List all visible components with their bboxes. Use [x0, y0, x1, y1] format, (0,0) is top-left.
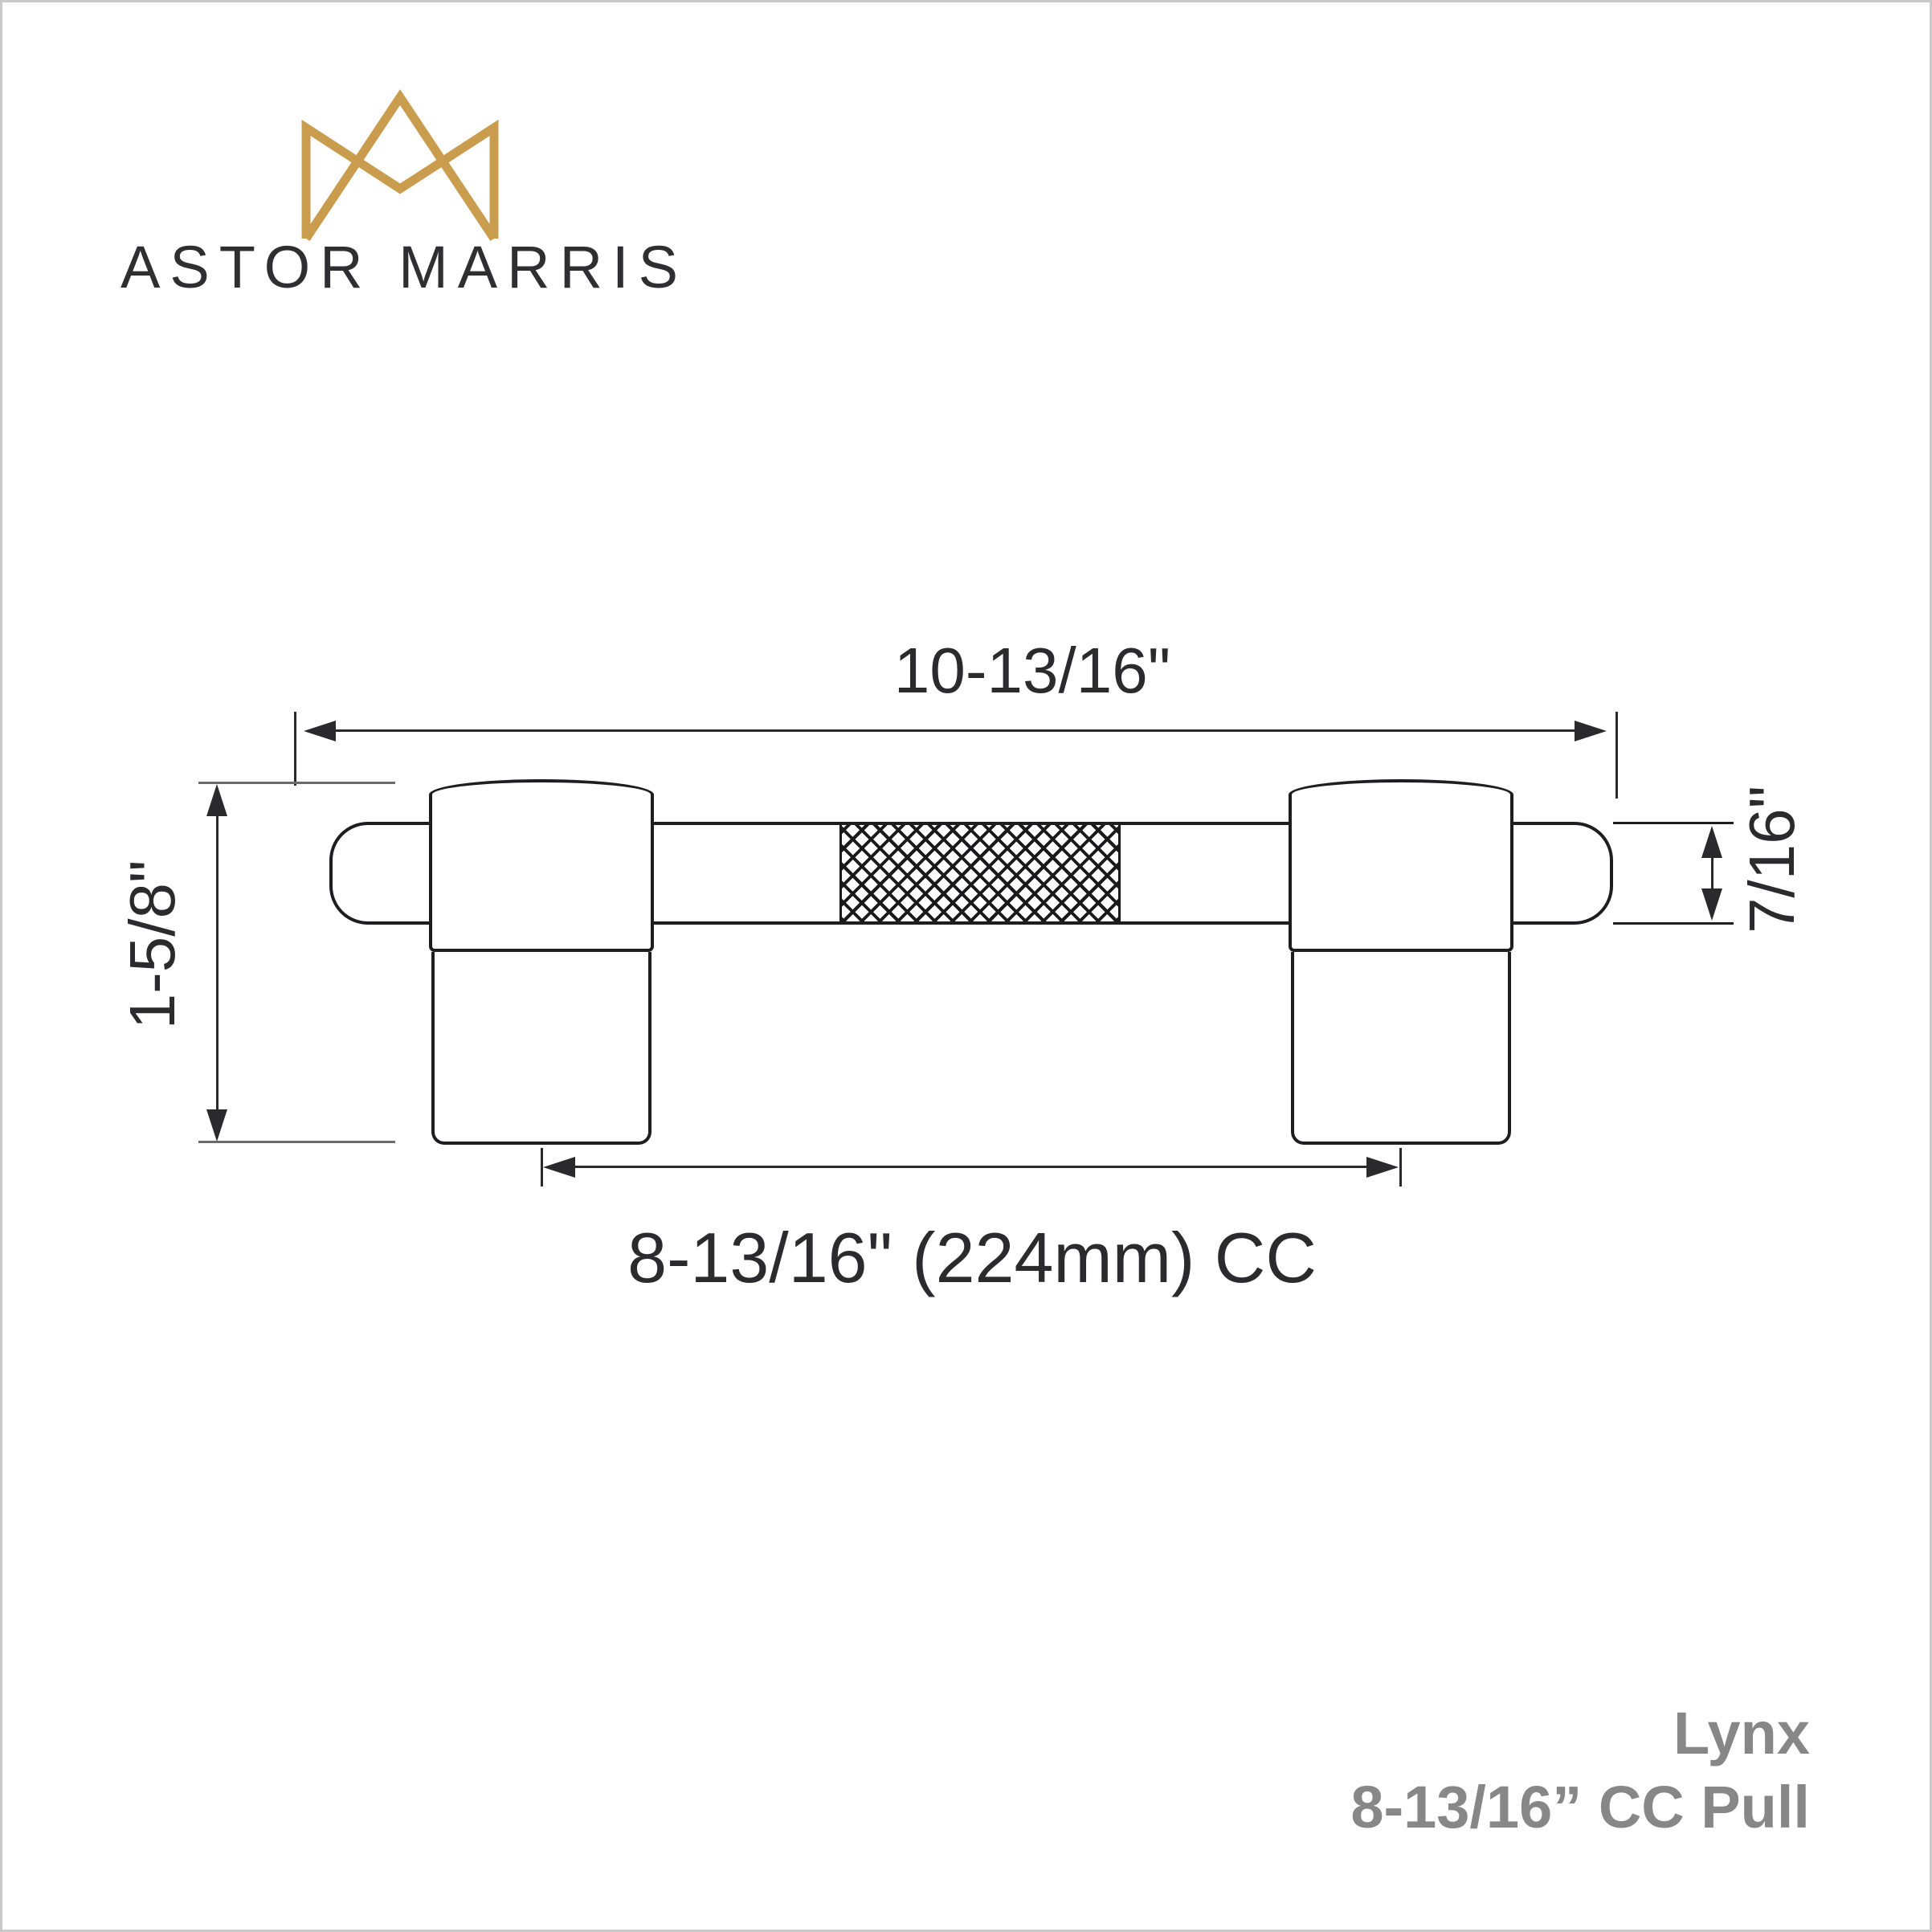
overall-length-label: 10-13/16" [894, 639, 1170, 703]
witness-line-right [1615, 712, 1618, 799]
witness-line-bottom [1613, 922, 1734, 925]
bar-diameter-label: 7/16" [1740, 786, 1804, 933]
left-post-cap [429, 779, 654, 952]
arrowhead-down-icon [1701, 888, 1722, 921]
right-post-base [1291, 952, 1511, 1145]
arrowhead-left-icon [543, 1157, 575, 1178]
witness-line-top [198, 782, 395, 784]
dimension-line [216, 791, 219, 1135]
arrowhead-up-icon [1701, 826, 1722, 858]
center-to-center-label: 8-13/16" (224mm) CC [627, 1223, 1317, 1293]
product-label: Lynx 8-13/16” CC Pull [1350, 1697, 1810, 1844]
arrowhead-up-icon [206, 784, 227, 816]
overall-height-label: 1-5/8" [120, 860, 185, 1030]
dimension-line [317, 729, 1599, 732]
left-post-base [431, 952, 651, 1145]
dimension-line [554, 1166, 1390, 1168]
arrowhead-left-icon [304, 721, 336, 741]
right-post-cap [1289, 779, 1513, 952]
arrowhead-right-icon [1366, 1157, 1399, 1178]
product-spec-sheet: ASTOR MARRIS 10-13/16" 1-5/8" [0, 0, 1932, 1932]
arrowhead-down-icon [206, 1109, 227, 1142]
arrowhead-right-icon [1575, 721, 1607, 741]
product-name: Lynx [1350, 1697, 1810, 1771]
witness-line-left [294, 712, 296, 786]
witness-line-right [1399, 1148, 1402, 1187]
witness-line-top [1613, 822, 1734, 824]
product-spec: 8-13/16” CC Pull [1350, 1771, 1810, 1844]
knurled-grip-section [839, 825, 1121, 921]
crown-monogram-icon [301, 92, 499, 239]
witness-line-bottom [198, 1141, 395, 1143]
brand-name: ASTOR MARRIS [120, 238, 688, 297]
